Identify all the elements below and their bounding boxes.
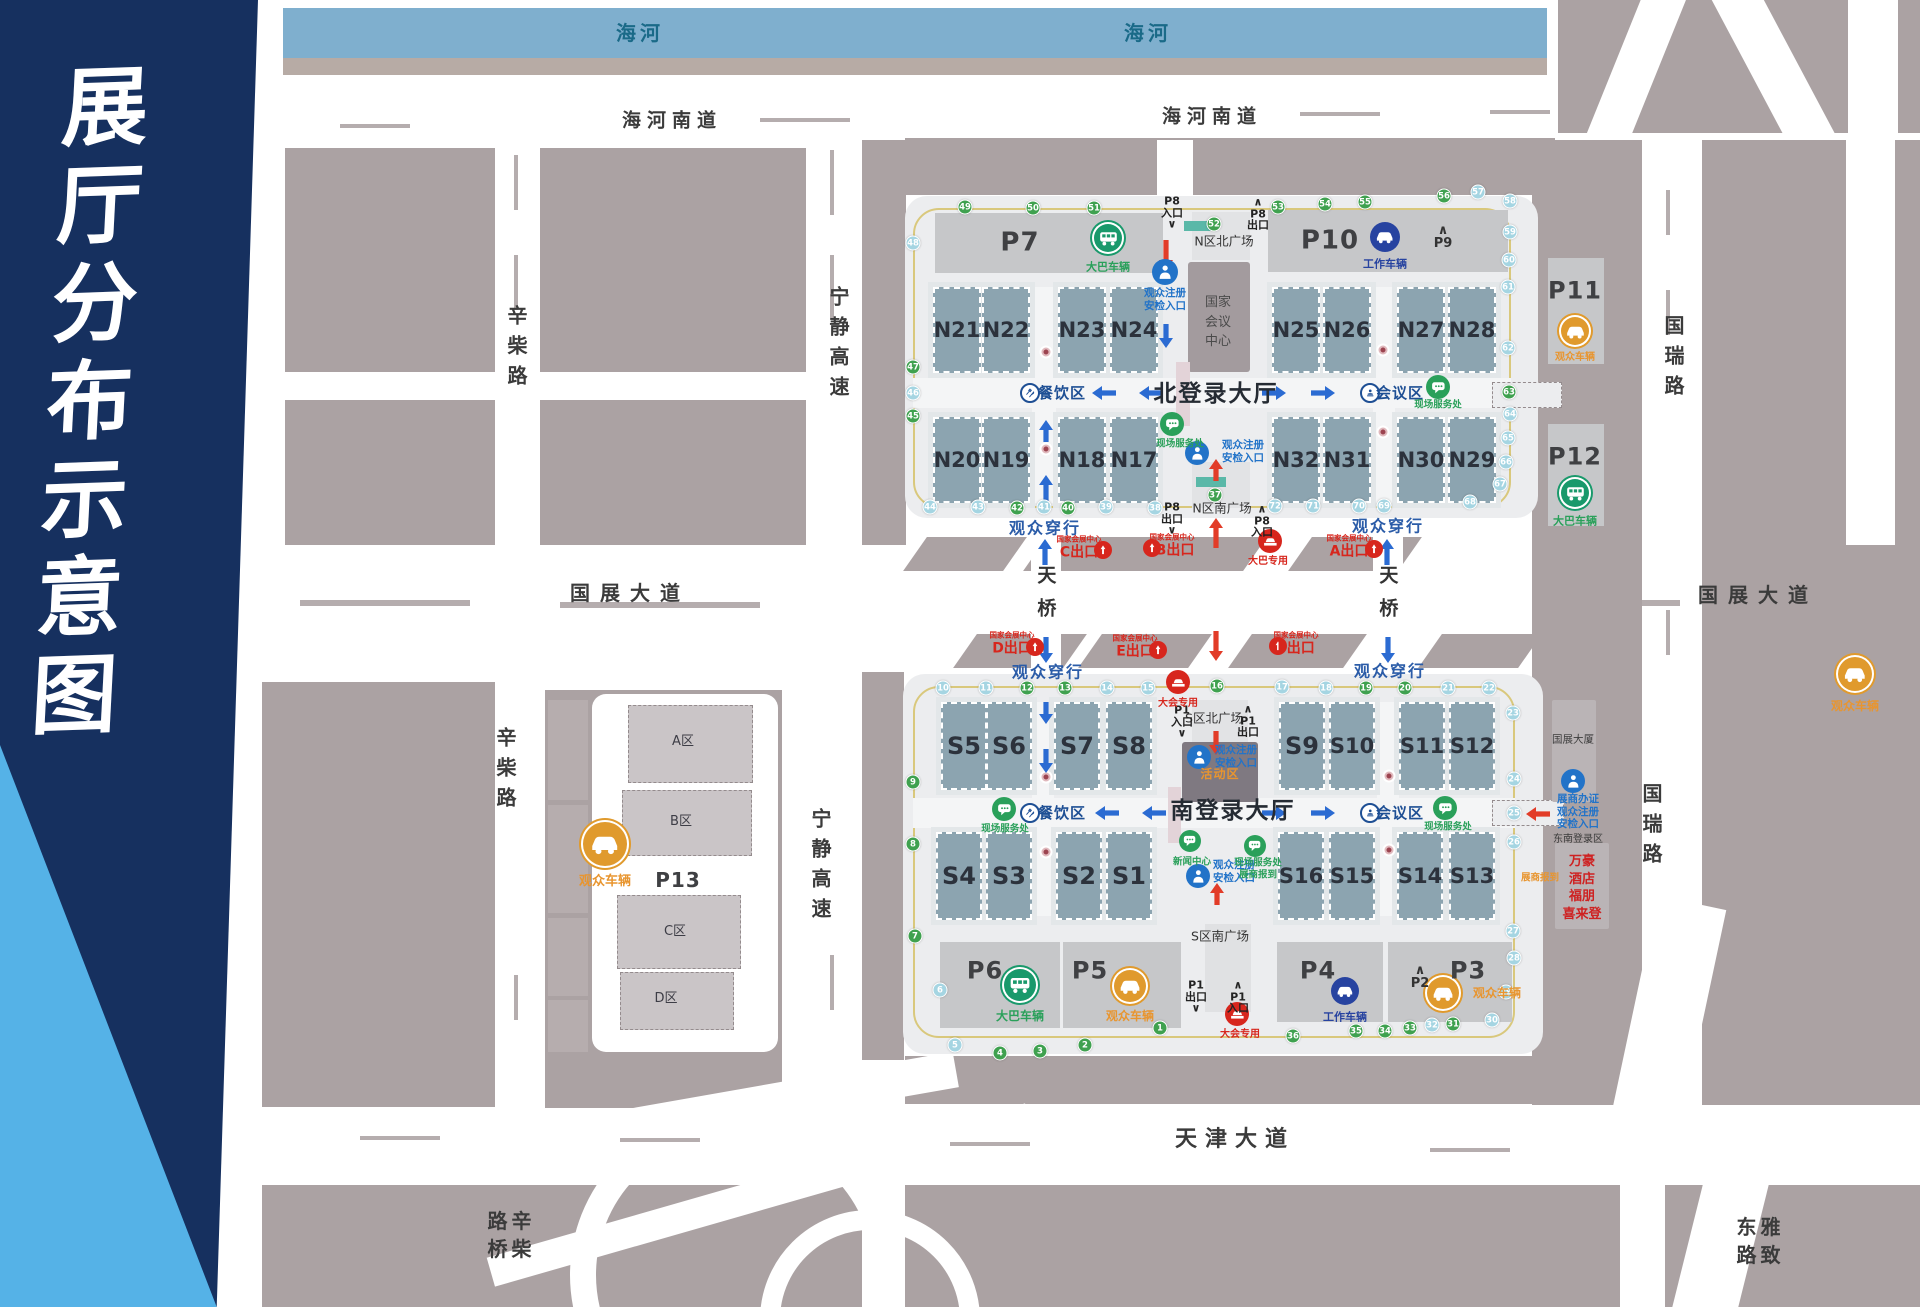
arrow-r <box>1311 386 1335 400</box>
no-entry-icon <box>1166 670 1190 694</box>
gate-60: 60 <box>1502 253 1517 268</box>
map-label: B出口 <box>1156 543 1195 560</box>
gate-65: 65 <box>1501 431 1516 446</box>
bus-vehicles-icon <box>1002 967 1038 1003</box>
hai-river <box>283 8 1547 58</box>
river-bank <box>283 58 1547 75</box>
map-label: 工作车辆 <box>1363 257 1407 270</box>
registration-security-icon <box>1152 259 1178 285</box>
gate-61: 61 <box>1501 280 1516 295</box>
gate-35: 35 <box>1349 1024 1364 1039</box>
gate-22: 22 <box>1482 681 1497 696</box>
visitor-vehicles-icon <box>1112 968 1148 1004</box>
dash <box>950 1142 1030 1146</box>
gate-54: 54 <box>1318 197 1333 212</box>
gate-24: 24 <box>1507 772 1522 787</box>
city-block <box>905 138 1555 195</box>
gate-11: 11 <box>979 681 994 696</box>
gate-68: 68 <box>1463 495 1478 510</box>
gate-53: 53 <box>1271 200 1286 215</box>
onsite-service-icon <box>1244 835 1266 857</box>
map-label: A区 <box>672 734 694 750</box>
map-label: ∧ P2 <box>1411 964 1430 990</box>
gate-13: 13 <box>1058 681 1073 696</box>
hall-S12: S12 <box>1449 702 1495 790</box>
hall-S1: S1 <box>1106 832 1152 920</box>
hall-N18: N18 <box>1058 417 1106 503</box>
hall-N21: N21 <box>933 287 981 373</box>
dash <box>514 975 518 1020</box>
visitor-vehicles-icon <box>1836 655 1874 693</box>
gate-70: 70 <box>1352 499 1367 514</box>
gate-69: 69 <box>1377 499 1392 514</box>
gate-6: 6 <box>933 983 948 998</box>
dash <box>830 150 834 215</box>
hall-S13: S13 <box>1449 832 1495 920</box>
hall-N26: N26 <box>1323 287 1371 373</box>
map-label: 现场服务处 <box>1414 399 1462 410</box>
map-label: 现场服务处 <box>1156 438 1204 449</box>
gate-44: 44 <box>923 500 938 515</box>
gate-39: 39 <box>1099 500 1114 515</box>
gate-21: 21 <box>1441 681 1456 696</box>
arrow-l <box>1095 806 1119 820</box>
gate-3: 3 <box>1033 1044 1048 1059</box>
hall-N17: N17 <box>1110 417 1158 503</box>
map-label: 国瑞路 <box>1661 315 1685 405</box>
map-label: 新闻中心 <box>1173 856 1211 867</box>
map-label: 观众车辆 <box>579 874 631 890</box>
dash <box>360 1136 440 1140</box>
gate-57: 57 <box>1471 185 1486 200</box>
registration-security-icon <box>1561 769 1585 793</box>
gate-27: 27 <box>1506 924 1521 939</box>
map-label: 海河南道 <box>622 110 722 133</box>
map-label: ∧ P9 <box>1434 224 1453 250</box>
map-label: D出口 <box>992 641 1032 658</box>
map-label: 南登录大厅 <box>1171 798 1296 826</box>
gate-2: 2 <box>1078 1038 1093 1053</box>
hall-N32: N32 <box>1272 417 1320 503</box>
map-label: 辛柴路 <box>493 727 517 817</box>
gate-50: 50 <box>1026 201 1041 216</box>
city-block <box>1702 140 1846 545</box>
dot-marker <box>1379 428 1388 437</box>
map-label: 观众车辆 <box>1473 986 1521 1000</box>
gate-49: 49 <box>958 200 973 215</box>
map-label: 观众车辆 <box>1555 352 1595 364</box>
gate-43: 43 <box>971 500 986 515</box>
city-block <box>905 1056 1550 1104</box>
map-label: 展商报到 <box>1521 872 1559 883</box>
gate-71: 71 <box>1306 499 1321 514</box>
visitor-vehicles-icon <box>1559 315 1591 347</box>
onsite-service-icon <box>1160 412 1184 436</box>
gate-64: 64 <box>1503 407 1518 422</box>
gate-58: 58 <box>1503 194 1518 209</box>
gate-62: 62 <box>1501 341 1516 356</box>
dash <box>1490 110 1550 114</box>
gate-31: 31 <box>1446 1017 1461 1032</box>
gate-10: 10 <box>936 681 951 696</box>
city-block <box>1702 545 1920 1105</box>
arrow-u <box>1038 539 1052 565</box>
map-label: 观众车辆 <box>1831 699 1879 713</box>
map-label: C出口 <box>1060 545 1098 562</box>
gate-55: 55 <box>1358 195 1373 210</box>
arrow-r <box>1311 806 1335 820</box>
map-label: 万豪 酒店 福朋 喜来登 <box>1562 853 1601 923</box>
gate-17: 17 <box>1275 680 1290 695</box>
onsite-service-icon <box>1426 375 1450 399</box>
hall-N28: N28 <box>1448 287 1496 373</box>
hall-S9: S9 <box>1279 702 1325 790</box>
map-label: 现场服务处 <box>981 823 1029 834</box>
road <box>1848 0 1898 135</box>
gate-67: 67 <box>1493 477 1508 492</box>
arrow-u <box>1209 459 1223 481</box>
parking-p12 <box>1548 424 1604 526</box>
hall-S2: S2 <box>1056 832 1102 920</box>
map-label: 北登录大厅 <box>1154 381 1279 409</box>
gate-36: 36 <box>1286 1029 1301 1044</box>
sub-block <box>548 918 588 996</box>
dash <box>340 124 410 128</box>
map-label: 观众穿行 <box>1012 662 1084 681</box>
map-label: P4 <box>1300 957 1336 986</box>
arrow-u <box>1039 420 1053 442</box>
city-block <box>1895 140 1920 545</box>
gate-41: 41 <box>1037 500 1052 515</box>
map-label: 国家 会议 中心 <box>1205 293 1231 352</box>
hall-S11: S11 <box>1399 702 1445 790</box>
map-label: 东南登录区 <box>1553 834 1603 846</box>
map-label: P10 <box>1301 225 1359 256</box>
map-label: P5 <box>1072 957 1108 986</box>
map-label: 国展大道 <box>1698 583 1818 607</box>
map-label: 大巴车辆 <box>996 1009 1044 1023</box>
hall-N25: N25 <box>1272 287 1320 373</box>
map-label: N区南广场 <box>1192 501 1251 516</box>
gate-48: 48 <box>906 236 921 251</box>
map-label: P12 <box>1548 443 1602 472</box>
map-label: 国家会展中心 <box>1150 533 1195 542</box>
map-label: ∧ P1 出口 <box>1237 704 1259 739</box>
gate-19: 19 <box>1359 681 1374 696</box>
map-label: 现场服务处 展商报到 <box>1234 858 1282 883</box>
dash <box>514 155 518 210</box>
hall-N31: N31 <box>1323 417 1371 503</box>
arrow-d <box>1159 324 1173 348</box>
hall-S6: S6 <box>986 702 1032 790</box>
onsite-service-icon <box>1433 796 1457 820</box>
map-label: 餐饮区 <box>1038 804 1086 822</box>
gate-40: 40 <box>1061 501 1076 516</box>
dash <box>1430 1148 1510 1152</box>
map-label: 大巴车辆 <box>1086 260 1130 273</box>
hall-S3: S3 <box>986 832 1032 920</box>
hall-S7: S7 <box>1054 702 1100 790</box>
map-label: 国家会展中心 <box>1327 534 1372 543</box>
hall-N27: N27 <box>1397 287 1445 373</box>
map-label: P7 <box>1000 227 1039 258</box>
map-label: N区北广场 <box>1194 234 1253 249</box>
arrow-u <box>1210 883 1224 905</box>
map-label: 大会专用 <box>1220 1029 1260 1041</box>
gate-59: 59 <box>1503 225 1518 240</box>
arrow-d <box>1039 749 1053 773</box>
dash <box>1666 610 1670 655</box>
gate-45: 45 <box>906 409 921 424</box>
hall-N23: N23 <box>1058 287 1106 373</box>
hall-N29: N29 <box>1448 417 1496 503</box>
gate-51: 51 <box>1087 201 1102 216</box>
dot-marker <box>1385 846 1394 855</box>
arrow-l <box>1092 386 1116 400</box>
ramp <box>1418 634 1542 668</box>
map-label: 展商办证 观众注册 安检入口 <box>1557 793 1599 831</box>
gate-63: 63 <box>1502 385 1517 400</box>
map-label: S区南广场 <box>1191 929 1249 944</box>
map-label: 大巴车辆 <box>1553 514 1597 527</box>
sub-block <box>548 700 588 800</box>
gate-47: 47 <box>906 360 921 375</box>
hall-S14: S14 <box>1397 832 1443 920</box>
map-label: 天桥 <box>1376 565 1399 631</box>
gate-12: 12 <box>1020 681 1035 696</box>
arrow-l <box>1526 807 1550 821</box>
gate-1: 1 <box>1153 1021 1168 1036</box>
median <box>300 600 470 606</box>
gate-15: 15 <box>1141 681 1156 696</box>
gate-20: 20 <box>1398 681 1413 696</box>
arrow-d <box>1381 637 1395 663</box>
visitor-vehicles-icon <box>581 820 629 868</box>
map-label: 会议区 <box>1376 804 1424 822</box>
dash <box>620 1138 700 1142</box>
gate-30: 30 <box>1485 1013 1500 1028</box>
gate-28: 28 <box>1507 951 1522 966</box>
hall-N19: N19 <box>982 417 1030 503</box>
arrow-l <box>1142 806 1166 820</box>
dot-marker <box>1042 348 1051 357</box>
map-label: P8 出口 ∨ <box>1161 502 1183 537</box>
map-canvas: N21N22N23N24N25N26N27N28N20N19N18N17N32N… <box>0 0 1920 1307</box>
map-label: ∧ P8 入口 <box>1251 504 1273 539</box>
map-label: P1 出口 ∨ <box>1185 980 1207 1015</box>
gate-26: 26 <box>1507 835 1522 850</box>
hall-N20: N20 <box>933 417 981 503</box>
map-label: 国展大厦 <box>1552 734 1594 747</box>
hall-S16: S16 <box>1278 832 1324 920</box>
sub-block <box>548 805 588 913</box>
sidebar: 展厅分布示意图 <box>0 0 258 1307</box>
map-label: 观众注册 安检入口 <box>1144 287 1186 313</box>
map-label: A出口 <box>1330 544 1369 561</box>
ramp <box>903 537 1027 571</box>
hall-S10: S10 <box>1329 702 1375 790</box>
gate-9: 9 <box>906 775 921 790</box>
dash <box>514 255 518 310</box>
dash <box>760 118 850 122</box>
bus-vehicles-icon <box>1092 222 1124 254</box>
map-label: 海河 <box>1124 21 1172 45</box>
hall-S4: S4 <box>936 832 982 920</box>
dot-marker <box>1042 773 1051 782</box>
map-label: 辛柴路桥 <box>484 1204 532 1273</box>
exhibition-map-page: N21N22N23N24N25N26N27N28N20N19N18N17N32N… <box>0 0 1920 1307</box>
map-label: 餐饮区 <box>1038 384 1086 402</box>
map-label: 大巴专用 <box>1248 556 1288 568</box>
dash <box>1666 190 1670 235</box>
map-label: 雅致东路 <box>1733 1213 1781 1276</box>
registration-security-icon <box>1187 745 1211 769</box>
map-label: 宁静高速 <box>826 286 850 406</box>
hall-N22: N22 <box>982 287 1030 373</box>
map-label: 观众穿行 <box>1354 661 1426 680</box>
map-label: 辛柴路 <box>504 305 528 395</box>
work-vehicles-icon <box>1370 222 1400 252</box>
hall-N30: N30 <box>1397 417 1445 503</box>
map-label: P8 入口 ∨ <box>1161 196 1183 231</box>
map-label: 观众车辆 <box>1106 1009 1154 1023</box>
map-label: 工作车辆 <box>1323 1010 1367 1023</box>
map-label: F出口 <box>1277 641 1315 658</box>
map-label: 国家会展中心 <box>1274 631 1319 640</box>
gate-32: 32 <box>1425 1018 1440 1033</box>
gate-23: 23 <box>1506 706 1521 721</box>
map-label: 海河 <box>616 21 664 45</box>
map-label: 天津大道 <box>1175 1127 1295 1153</box>
gate-34: 34 <box>1378 1024 1393 1039</box>
city-block <box>905 1185 1620 1307</box>
dot-marker <box>1042 848 1051 857</box>
gate-46: 46 <box>906 386 921 401</box>
arrow-d <box>1039 702 1053 724</box>
map-label: 国家会展中心 <box>1057 535 1102 544</box>
city-block <box>540 148 806 545</box>
news-center-icon <box>1179 830 1201 852</box>
map-label: S区北广场 <box>1185 711 1243 726</box>
map-label: 国家会展中心 <box>1113 634 1158 643</box>
sub-block <box>548 1000 588 1052</box>
map-label: P11 <box>1548 277 1602 306</box>
city-block <box>262 682 495 1107</box>
map-label: 观众注册 安检入口 <box>1215 744 1257 770</box>
gate-16: 16 <box>1210 679 1225 694</box>
map-label: P6 <box>967 957 1003 986</box>
map-label: 现场服务处 <box>1424 821 1472 832</box>
road <box>262 372 806 400</box>
map-label: 观众注册 安检入口 <box>1222 439 1264 465</box>
map-label: 海河南道 <box>1162 106 1262 129</box>
gate-25: 25 <box>1507 806 1522 821</box>
hall-S5: S5 <box>941 702 987 790</box>
gate-7: 7 <box>908 929 923 944</box>
dot-marker <box>1385 772 1394 781</box>
dot-marker <box>1042 445 1051 454</box>
city-block <box>285 148 495 545</box>
gate-18: 18 <box>1319 681 1334 696</box>
map-label: D区 <box>654 991 677 1007</box>
gate-14: 14 <box>1100 681 1115 696</box>
gate-56: 56 <box>1437 189 1452 204</box>
map-label: ∧ P8 出口 <box>1247 197 1269 232</box>
map-label: C区 <box>664 924 686 940</box>
map-label: 大会专用 <box>1158 698 1198 710</box>
map-label: P3 <box>1450 957 1486 986</box>
dash <box>1300 112 1380 116</box>
hall-S15: S15 <box>1329 832 1375 920</box>
map-label: 国家会展中心 <box>990 631 1035 640</box>
map-label: ∧ P1 入口 <box>1227 980 1249 1015</box>
bus-vehicles-icon <box>1559 477 1591 509</box>
map-label: 天桥 <box>1034 565 1057 631</box>
city-block <box>862 672 904 1060</box>
map-label: 国展大道 <box>570 581 690 605</box>
map-label: 宁静高速 <box>808 808 832 928</box>
arrow-d <box>1209 631 1223 661</box>
gate-8: 8 <box>906 837 921 852</box>
arrow-u <box>1039 475 1053 501</box>
gate-42: 42 <box>1010 501 1025 516</box>
city-block <box>862 140 906 545</box>
gate-4: 4 <box>993 1046 1008 1061</box>
arrow-u <box>1209 518 1223 548</box>
gate-33: 33 <box>1403 1021 1418 1036</box>
map-label: E出口 <box>1116 644 1154 661</box>
gate-66: 66 <box>1499 455 1514 470</box>
map-label: 国瑞路 <box>1639 783 1663 873</box>
dash <box>830 955 834 1010</box>
gate-52: 52 <box>1207 217 1222 232</box>
parking-p11 <box>1548 258 1604 364</box>
hall-S8: S8 <box>1106 702 1152 790</box>
onsite-service-icon <box>992 797 1016 821</box>
gate-5: 5 <box>948 1038 963 1053</box>
map-label: P13 <box>655 868 701 892</box>
map-label: B区 <box>670 814 692 830</box>
dot-marker <box>1379 346 1388 355</box>
